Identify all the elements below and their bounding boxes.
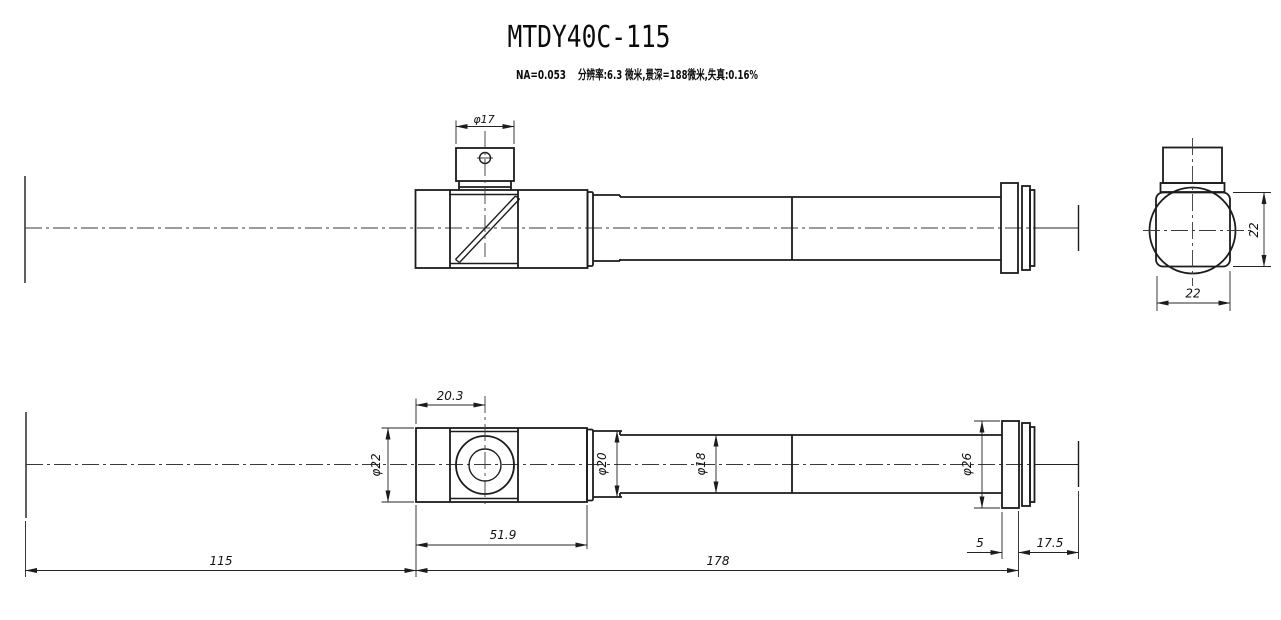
bottom-view: 20.3 φ22 51.9 φ20 φ18 φ26 5 (26, 389, 1079, 577)
spec-na-value: NA=0.053 (516, 67, 566, 82)
dim-5-label: 5 (976, 536, 984, 550)
dim-phi20-label: φ20 (595, 452, 609, 476)
dim-17-5-label: 17.5 (1037, 536, 1064, 550)
dim-5-17-5-extensions (1002, 491, 1079, 577)
main-tube-outline (620, 435, 1002, 493)
port-section-walls (450, 428, 518, 502)
dim-phi22-label: φ22 (369, 453, 383, 476)
dim-phi17-label: φ17 (473, 113, 494, 126)
main-body-outline (416, 190, 588, 268)
technical-drawing-canvas: MTDY40C-115 NA=0.053 分辨率:6.3 微米,景深=188微米… (0, 0, 1281, 620)
dim-phi26-label: φ26 (960, 453, 974, 477)
top-view: φ17 (25, 113, 1079, 283)
body-step-ring (587, 430, 593, 501)
dim-20-3-label: 20.3 (437, 389, 464, 403)
beam-splitter-diagonal (456, 196, 520, 263)
main-tube-outline (620, 197, 1001, 260)
dim-phi18-label: φ18 (694, 452, 708, 476)
port-section-inset-lines (450, 432, 518, 499)
drawing-title: MTDY40C-115 (508, 20, 671, 55)
dim-width-label: 22 (1185, 287, 1200, 301)
rear-ring-lip (1030, 427, 1035, 502)
dim-115-label: 115 (210, 554, 233, 568)
drawing-sheet: MTDY40C-115 NA=0.053 分辨率:6.3 微米,景深=188微米… (0, 0, 1281, 620)
dim-height-label: 22 (1247, 222, 1261, 237)
dim-51-9-label: 51.9 (490, 528, 517, 542)
dim-phi22-extensions (382, 428, 415, 502)
spec-resolution-dof-distortion: 分辨率:6.3 微米,景深=188微米,失真:0.16% (578, 67, 758, 82)
body-step-ring (588, 192, 594, 266)
side-view: 22 22 (1143, 138, 1271, 311)
rear-ring-lip (1030, 190, 1035, 266)
body-square-outline (1156, 193, 1230, 267)
dim-178-label: 178 (707, 554, 730, 568)
